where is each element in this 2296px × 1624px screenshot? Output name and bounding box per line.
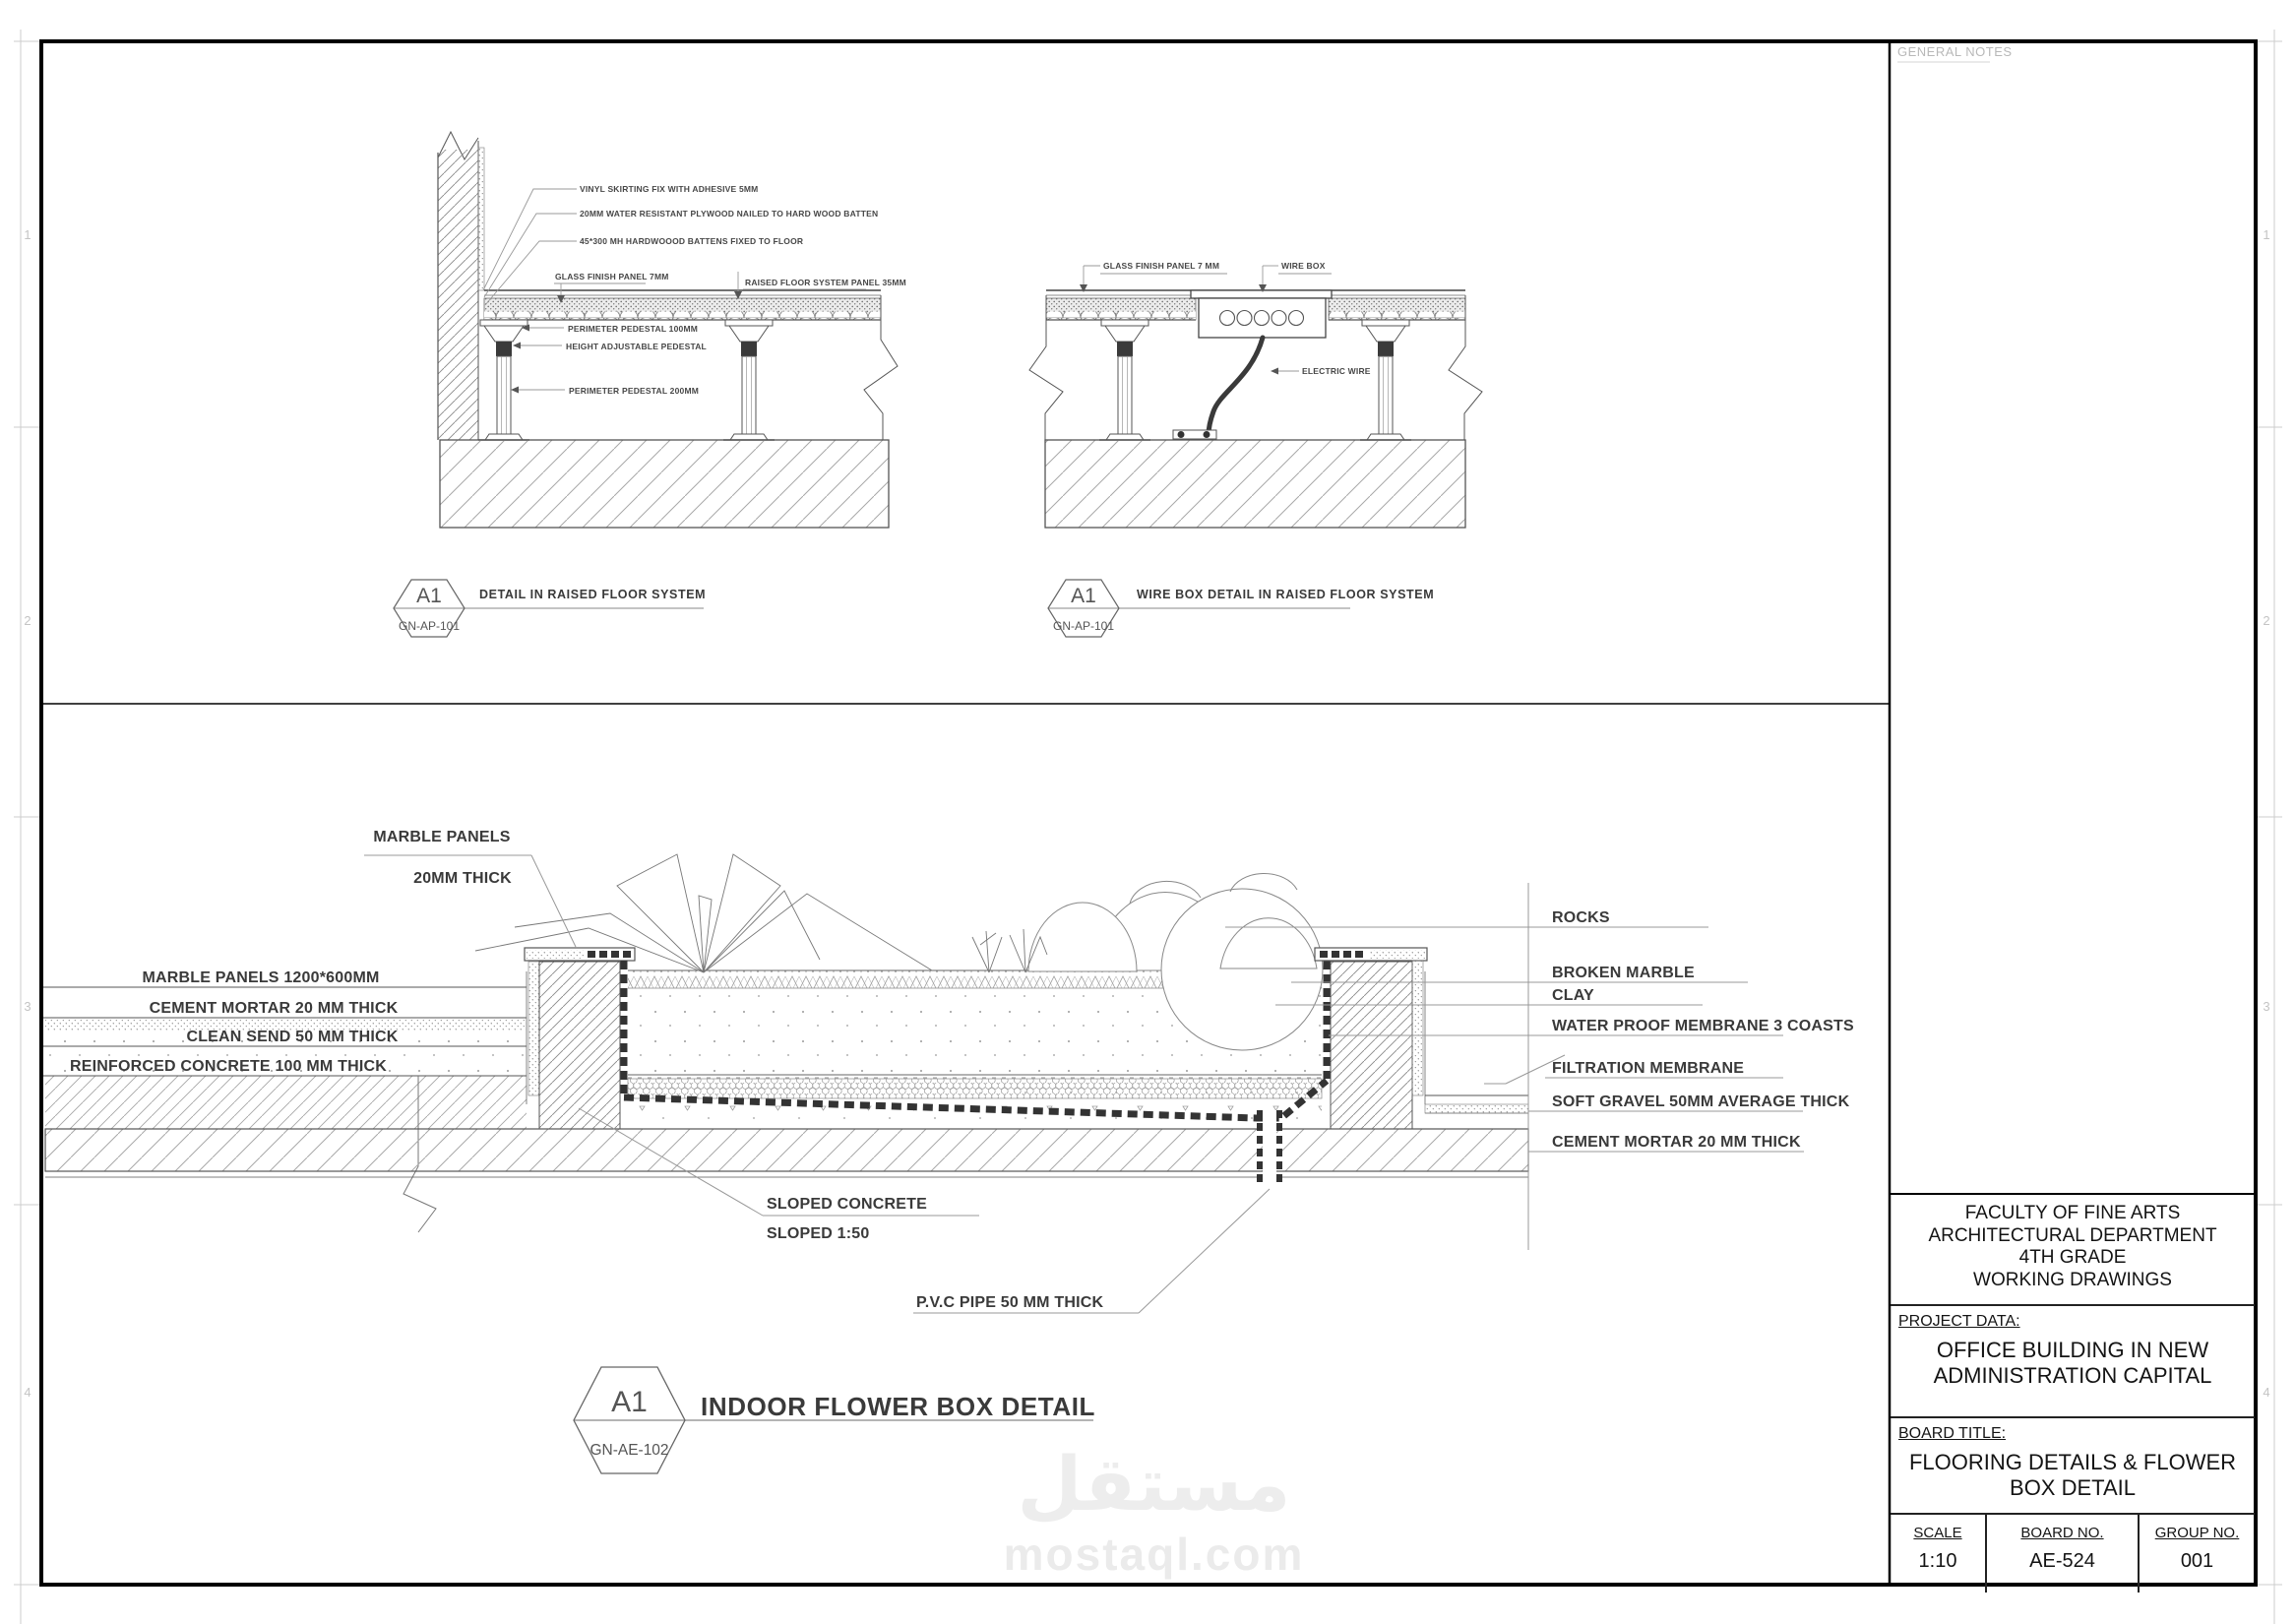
- detail-tag: A1: [1071, 585, 1096, 607]
- electric-wire: [1209, 338, 1263, 435]
- board-title-line: BOX DETAIL: [1891, 1475, 2255, 1501]
- perimeter-pedestal: [478, 320, 529, 440]
- label-cement-mortar: CEMENT MORTAR 20 MM THICK: [1552, 1134, 1801, 1151]
- label-raised-panel: RAISED FLOOR SYSTEM PANEL 35MM: [745, 278, 906, 287]
- label-soft-gravel: SOFT GRAVEL 50MM AVERAGE THICK: [1552, 1093, 1850, 1110]
- project-data-label: PROJECT DATA:: [1891, 1306, 2255, 1331]
- pedestal: [1360, 320, 1411, 440]
- base-slab: [45, 1129, 1528, 1171]
- label-electric-wire: ELECTRIC WIRE: [1302, 366, 1371, 376]
- detail-code: GN-AE-102: [590, 1442, 668, 1459]
- label-sloped-concrete: SLOPED CONCRETE: [767, 1196, 927, 1213]
- height-adjustable-pedestal: [723, 320, 775, 440]
- board-no-label: BOARD NO.: [1987, 1525, 2138, 1541]
- label-plywood: 20MM WATER RESISTANT PLYWOOD NAILED TO H…: [580, 209, 878, 219]
- label-layer-mortar: CEMENT MORTAR 20 MM THICK: [150, 1000, 399, 1017]
- group-no-label: GROUP NO.: [2140, 1525, 2255, 1541]
- label-waterproof: WATER PROOF MEMBRANE 3 COASTS: [1552, 1018, 1854, 1034]
- zone-number: 2: [2263, 613, 2269, 628]
- label-clay: CLAY: [1552, 987, 1594, 1004]
- wire-box-body: [1199, 298, 1326, 338]
- vinyl-skirting-strip: [478, 148, 484, 290]
- scale-value: 1:10: [1891, 1550, 1985, 1573]
- label-pvc-pipe: P.V.C PIPE 50 MM THICK: [916, 1294, 1103, 1311]
- scale-cell: SCALE 1:10: [1891, 1515, 1985, 1593]
- pedestal: [1099, 320, 1150, 440]
- project-name-line: OFFICE BUILDING IN NEW: [1891, 1338, 2255, 1363]
- drawing-sheet: مستقل mostaql.com: [0, 0, 2296, 1624]
- institution-line: ARCHITECTURAL DEPARTMENT: [1891, 1225, 2255, 1248]
- planter-left-wall: [525, 948, 635, 1129]
- detail-title: DETAIL IN RAISED FLOOR SYSTEM: [479, 588, 706, 601]
- detail-title: WIRE BOX DETAIL IN RAISED FLOOR SYSTEM: [1137, 588, 1434, 601]
- board-title-label: BOARD TITLE:: [1891, 1418, 2255, 1443]
- detail-wire-box: GLASS FINISH PANEL 7 MM WIRE BOX ELECTRI…: [1029, 261, 1482, 637]
- zone-number: 1: [24, 227, 31, 242]
- label-glass-panel: GLASS FINISH PANEL 7 MM: [1103, 261, 1219, 271]
- zone-number: 4: [2263, 1385, 2269, 1400]
- institution-line: WORKING DRAWINGS: [1891, 1270, 2255, 1292]
- zone-number: 2: [24, 613, 31, 628]
- group-no-cell: GROUP NO. 001: [2138, 1515, 2255, 1593]
- label-filtration: FILTRATION MEMBRANE: [1552, 1060, 1744, 1077]
- general-notes-label: GENERAL NOTES: [1897, 44, 2013, 59]
- label-sloped-ratio: SLOPED 1:50: [767, 1225, 869, 1242]
- board-title-line: FLOORING DETAILS & FLOWER: [1891, 1450, 2255, 1475]
- zone-number: 4: [24, 1385, 31, 1400]
- concrete-slab: [440, 440, 889, 528]
- label-layer-send: CLEAN SEND 50 MM THICK: [186, 1029, 398, 1045]
- label-battens: 45*300 MH HARDWOOOD BATTENS FIXED TO FLO…: [580, 236, 803, 246]
- detail-flower-box: MARBLE PANELS 20MM THICK MARBLE PANELS 1…: [41, 829, 1854, 1473]
- label-perimeter-pedestal-200: PERIMETER PEDESTAL 200MM: [569, 386, 699, 396]
- project-data-block: PROJECT DATA: OFFICE BUILDING IN NEW ADM…: [1891, 1306, 2255, 1418]
- institution-block: FACULTY OF FINE ARTS ARCHITECTURAL DEPAR…: [1891, 1195, 2255, 1306]
- label-broken-marble: BROKEN MARBLE: [1552, 965, 1695, 981]
- detail-raised-floor-system: VINYL SKIRTING FIX WITH ADHESIVE 5MM 20M…: [394, 132, 906, 637]
- group-no-value: 001: [2140, 1550, 2255, 1573]
- label-marble-thick: 20MM THICK: [413, 870, 512, 887]
- zone-number: 1: [2263, 227, 2269, 242]
- detail-tag: A1: [611, 1386, 648, 1418]
- label-rocks: ROCKS: [1552, 909, 1610, 926]
- concrete-slab: [1045, 440, 1465, 528]
- zone-number: 3: [2263, 999, 2269, 1014]
- label-glass-panel: GLASS FINISH PANEL 7MM: [555, 272, 669, 281]
- label-perimeter-pedestal-100: PERIMETER PEDESTAL 100MM: [568, 324, 698, 334]
- institution-line: FACULTY OF FINE ARTS: [1891, 1203, 2255, 1225]
- planter-right-wall: [1315, 948, 1427, 1129]
- board-no-cell: BOARD NO. AE-524: [1985, 1515, 2138, 1593]
- label-marble-panels: MARBLE PANELS: [373, 829, 510, 845]
- title-block: FACULTY OF FINE ARTS ARCHITECTURAL DEPAR…: [1891, 1193, 2255, 1587]
- label-height-adjustable: HEIGHT ADJUSTABLE PEDESTAL: [566, 342, 707, 351]
- title-block-footer: SCALE 1:10 BOARD NO. AE-524 GROUP NO. 00…: [1891, 1515, 2255, 1593]
- label-layer-concrete: REINFORCED CONCRETE 100 MM THICK: [70, 1058, 387, 1075]
- project-name-line: ADMINISTRATION CAPITAL: [1891, 1363, 2255, 1389]
- zone-number: 3: [24, 999, 31, 1014]
- detail-tag: A1: [416, 585, 442, 607]
- board-title-block: BOARD TITLE: FLOORING DETAILS & FLOWER B…: [1891, 1418, 2255, 1515]
- wire-box-flange: [1191, 290, 1332, 298]
- detail-code: GN-AP-101: [399, 619, 460, 633]
- pvc-pipe: [1260, 1110, 1279, 1189]
- detail-title: INDOOR FLOWER BOX DETAIL: [701, 1392, 1095, 1421]
- board-no-value: AE-524: [1987, 1550, 2138, 1573]
- institution-line: 4TH GRADE: [1891, 1247, 2255, 1270]
- label-vinyl-skirting: VINYL SKIRTING FIX WITH ADHESIVE 5MM: [580, 184, 758, 194]
- detail-code: GN-AP-101: [1053, 619, 1114, 633]
- label-wire-box: WIRE BOX: [1281, 261, 1326, 271]
- label-layer-marble: MARBLE PANELS 1200*600MM: [142, 969, 379, 986]
- scale-label: SCALE: [1891, 1525, 1985, 1541]
